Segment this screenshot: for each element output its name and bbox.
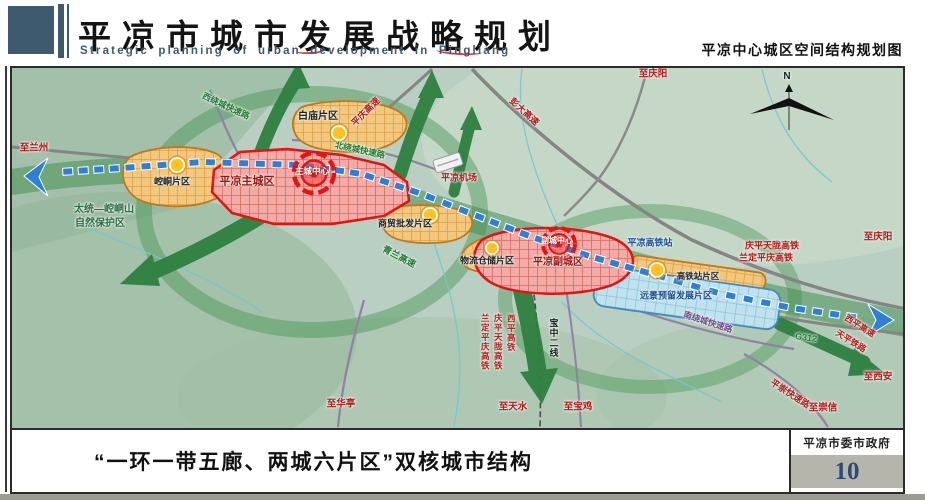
logo-accent-bar-thin (67, 4, 69, 58)
logo-square (8, 6, 54, 54)
page-number: 10 (791, 455, 903, 488)
zone-baimiao (293, 101, 407, 152)
left-rule-line (5, 66, 7, 492)
structure-caption: “一环一带五廊、两城六片区”双核城市结构 (94, 430, 533, 492)
logo-accent-bar (58, 4, 64, 58)
bottom-strip (0, 494, 925, 500)
planning-document-page: 平凉市城市发展战略规划 Strategic planning of urban … (0, 0, 925, 500)
agency-label: 平凉市委市政府 (791, 430, 903, 455)
info-box: 平凉市委市政府 10 (789, 430, 903, 492)
page-title-english: Strategic planning of urban development … (80, 45, 510, 57)
map-frame: 至兰州太统—崆峒山自然保护区崆峒片区白庙片区平凉主城区主城中心西绕城快速路北绕城… (10, 66, 905, 430)
sheet-title: 平凉中心城区空间结构规划图 (702, 40, 904, 60)
structure-plan-map (12, 68, 903, 428)
footer-bar: “一环一带五廊、两城六片区”双核城市结构 平凉市委市政府 10 (10, 428, 905, 494)
